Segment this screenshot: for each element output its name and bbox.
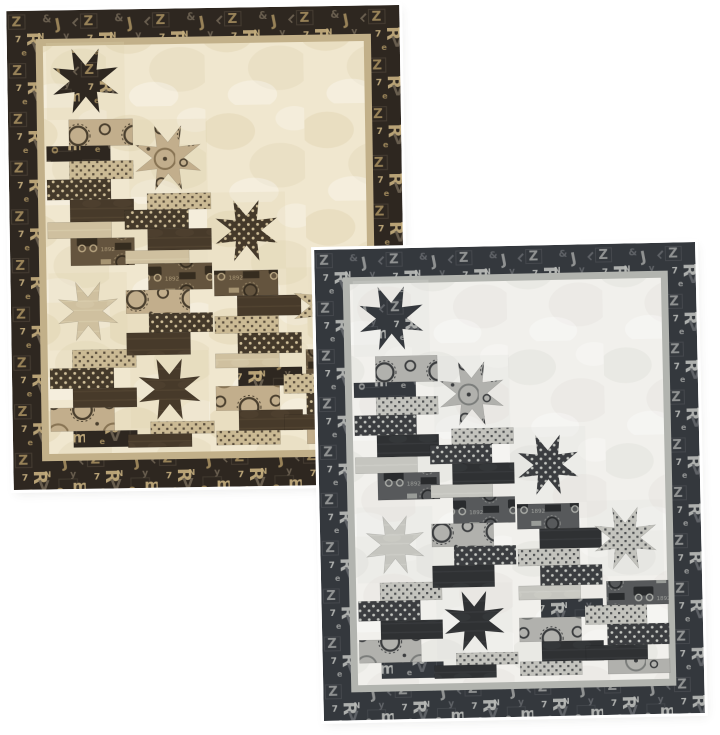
- strip-bar: [354, 382, 416, 398]
- strip-bar: [216, 385, 280, 410]
- quilt-gray-colorway: ZR&J7VomLeyN1892: [314, 242, 705, 721]
- strip-bar: [51, 407, 115, 431]
- strip-bar: [520, 661, 582, 676]
- strip-bar: [126, 289, 190, 313]
- strip-bar: [125, 209, 189, 229]
- strip-bar: [46, 145, 110, 161]
- strip-bar: [355, 456, 417, 473]
- strip-bar: [539, 527, 601, 548]
- strip-bar: [47, 179, 111, 200]
- strip-bar: [376, 396, 438, 415]
- strip-bar: [431, 484, 493, 498]
- strip-bar: [238, 332, 302, 353]
- strip-bar: [148, 263, 212, 290]
- strip-bar: [125, 250, 189, 264]
- strip-bar: [48, 222, 112, 239]
- strip-bar: [608, 659, 670, 674]
- strip-bar: [69, 119, 133, 146]
- strip-bar: [430, 444, 492, 464]
- strip-bar: [606, 580, 668, 605]
- strip-bar: [354, 415, 416, 436]
- strip-bar: [151, 421, 215, 434]
- strip-bar: [381, 620, 443, 640]
- strip-bar: [149, 312, 213, 332]
- strip-bar: [73, 388, 137, 408]
- strip-bar: [435, 664, 497, 678]
- strip-bar: [358, 600, 420, 621]
- strip-bar: [456, 652, 518, 665]
- strip-bar: [237, 295, 301, 316]
- strip-bar: [69, 160, 133, 179]
- strip-bar: [128, 433, 192, 447]
- strip-bar: [147, 193, 211, 210]
- strip-bar: [517, 503, 579, 529]
- strip-bar: [359, 639, 421, 663]
- strip-bar: [518, 548, 580, 566]
- strip-bar: [215, 353, 279, 368]
- strip-bar: [607, 623, 669, 645]
- strip-bar: [432, 523, 494, 547]
- strip-bar: [148, 228, 212, 250]
- strip-bar: [519, 585, 581, 600]
- strip-bar: [585, 604, 647, 624]
- quilt-mockups-image: ZR&J7VomLeyN1892 ZR&J7VomLeyN1892: [0, 0, 720, 735]
- strip-bar: [453, 496, 515, 523]
- strip-bar: [214, 270, 278, 296]
- strip-bar: [454, 545, 516, 565]
- strip-bar: [452, 462, 514, 484]
- strip-bar: [215, 315, 279, 333]
- strip-bar: [452, 428, 514, 445]
- strip-bar: [375, 355, 437, 382]
- strip-bar: [540, 564, 602, 585]
- quilt-gray-graphic: ZR&J7VomLeyN1892: [314, 242, 705, 721]
- strip-bar: [217, 430, 281, 445]
- strip-bar: [127, 332, 191, 355]
- strip-bar: [50, 368, 114, 389]
- strip-bar: [432, 565, 494, 588]
- strip-bar: [519, 617, 581, 642]
- strip-bar: [586, 644, 648, 660]
